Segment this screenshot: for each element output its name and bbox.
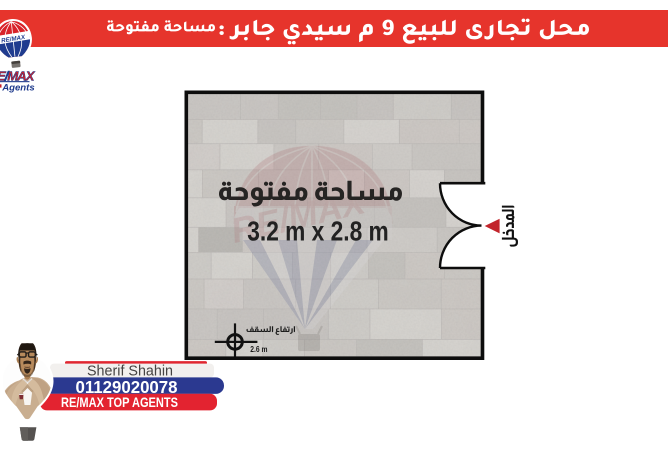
- svg-text:Agents: Agents: [1, 83, 35, 94]
- svg-text:RE/MAX TOP AGENTS: RE/MAX TOP AGENTS: [61, 394, 178, 410]
- svg-text:2.6 m: 2.6 m: [250, 344, 267, 354]
- svg-text:3.2 m x 2.8 m: 3.2 m x 2.8 m: [247, 216, 389, 247]
